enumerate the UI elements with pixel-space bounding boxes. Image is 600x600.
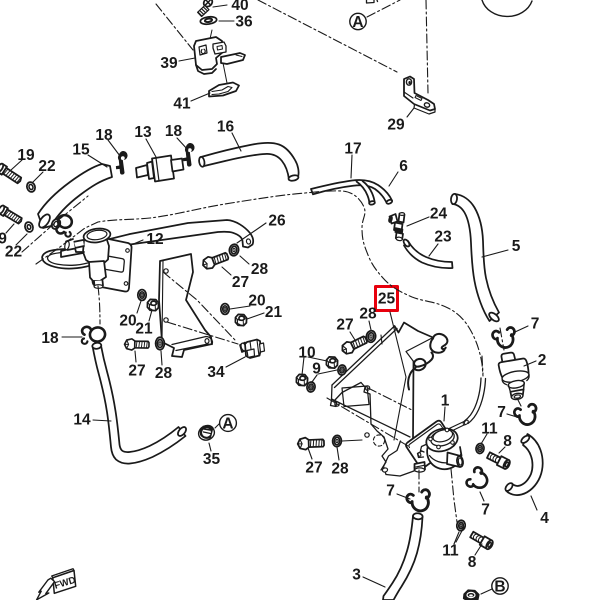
svg-text:B: B	[494, 579, 505, 596]
svg-text:7: 7	[497, 404, 506, 421]
svg-text:7: 7	[531, 315, 540, 332]
svg-text:17: 17	[344, 140, 361, 157]
svg-text:27: 27	[305, 459, 322, 476]
svg-text:29: 29	[387, 116, 405, 133]
svg-text:34: 34	[207, 364, 225, 381]
svg-text:22: 22	[5, 243, 22, 260]
svg-text:20: 20	[248, 292, 265, 309]
svg-text:35: 35	[203, 451, 221, 468]
svg-text:22: 22	[38, 158, 55, 175]
svg-text:27: 27	[232, 274, 249, 291]
svg-text:28: 28	[251, 261, 269, 278]
svg-text:1: 1	[441, 392, 450, 409]
svg-text:4: 4	[540, 510, 549, 527]
svg-text:40: 40	[231, 0, 248, 14]
svg-text:7: 7	[481, 501, 490, 518]
svg-text:2: 2	[538, 352, 547, 369]
svg-text:10: 10	[298, 344, 315, 361]
svg-text:39: 39	[160, 55, 178, 72]
svg-text:21: 21	[135, 320, 153, 337]
svg-text:27: 27	[336, 316, 353, 333]
svg-text:6: 6	[399, 158, 408, 175]
svg-text:18: 18	[95, 127, 113, 144]
svg-text:16: 16	[217, 118, 235, 135]
svg-text:27: 27	[128, 362, 145, 379]
svg-text:A: A	[352, 14, 363, 31]
svg-text:11: 11	[481, 420, 498, 437]
svg-text:41: 41	[173, 95, 191, 112]
svg-text:8: 8	[468, 554, 477, 571]
svg-text:3: 3	[352, 566, 361, 583]
svg-text:9: 9	[312, 360, 321, 377]
svg-text:20: 20	[119, 312, 136, 329]
svg-text:25: 25	[378, 290, 396, 307]
svg-text:14: 14	[73, 411, 91, 428]
svg-text:28: 28	[331, 460, 349, 477]
svg-text:18: 18	[165, 123, 183, 140]
svg-text:23: 23	[434, 228, 452, 245]
svg-text:36: 36	[235, 13, 253, 30]
svg-text:A: A	[222, 416, 233, 433]
svg-text:21: 21	[265, 304, 283, 321]
svg-text:19: 19	[17, 147, 35, 164]
svg-text:26: 26	[268, 212, 286, 229]
svg-text:11: 11	[442, 542, 459, 559]
svg-text:18: 18	[41, 330, 59, 347]
svg-text:28: 28	[155, 365, 173, 382]
svg-text:8: 8	[503, 433, 512, 450]
svg-text:5: 5	[512, 238, 521, 255]
svg-text:7: 7	[386, 482, 395, 499]
svg-text:13: 13	[134, 124, 152, 141]
svg-text:12: 12	[146, 231, 163, 248]
svg-text:24: 24	[430, 205, 448, 222]
svg-text:15: 15	[72, 141, 90, 158]
svg-text:28: 28	[359, 305, 377, 322]
